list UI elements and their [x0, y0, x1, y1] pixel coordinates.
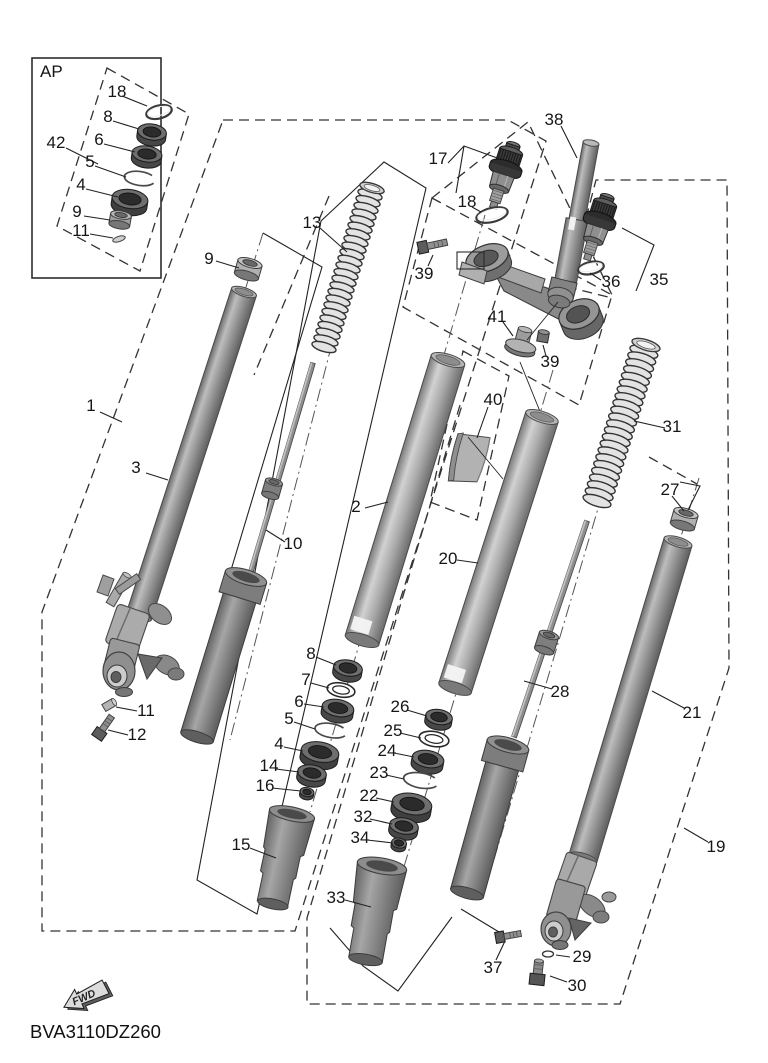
svg-text:42: 42 — [47, 133, 66, 152]
svg-text:10: 10 — [284, 534, 303, 553]
svg-text:16: 16 — [256, 776, 275, 795]
svg-text:35: 35 — [650, 270, 669, 289]
svg-text:18: 18 — [108, 82, 127, 101]
svg-text:17: 17 — [429, 149, 448, 168]
svg-text:33: 33 — [327, 888, 346, 907]
svg-text:22: 22 — [360, 786, 379, 805]
svg-text:21: 21 — [683, 703, 702, 722]
svg-text:4: 4 — [76, 175, 85, 194]
svg-text:3: 3 — [131, 458, 140, 477]
svg-text:39: 39 — [415, 264, 434, 283]
svg-text:5: 5 — [85, 152, 94, 171]
svg-text:5: 5 — [284, 709, 293, 728]
svg-text:40: 40 — [484, 390, 503, 409]
svg-text:27: 27 — [661, 480, 680, 499]
svg-text:19: 19 — [707, 837, 726, 856]
svg-text:12: 12 — [128, 725, 147, 744]
svg-text:38: 38 — [545, 110, 564, 129]
svg-text:BVA3110DZ260: BVA3110DZ260 — [30, 1021, 161, 1042]
svg-text:25: 25 — [384, 721, 403, 740]
svg-text:9: 9 — [204, 249, 213, 268]
svg-text:30: 30 — [568, 976, 587, 995]
svg-text:20: 20 — [439, 549, 458, 568]
svg-text:26: 26 — [391, 697, 410, 716]
svg-text:6: 6 — [294, 692, 303, 711]
svg-text:36: 36 — [602, 272, 621, 291]
svg-text:8: 8 — [103, 107, 112, 126]
svg-text:13: 13 — [303, 213, 322, 232]
svg-text:2: 2 — [351, 497, 360, 516]
svg-text:31: 31 — [663, 417, 682, 436]
svg-text:14: 14 — [260, 756, 279, 775]
svg-text:9: 9 — [72, 202, 81, 221]
svg-text:8: 8 — [306, 644, 315, 663]
svg-text:AP: AP — [40, 62, 63, 81]
svg-text:7: 7 — [301, 670, 310, 689]
svg-text:24: 24 — [378, 741, 397, 760]
svg-text:11: 11 — [137, 701, 155, 720]
svg-text:11: 11 — [72, 221, 90, 240]
svg-text:34: 34 — [351, 828, 370, 847]
svg-text:15: 15 — [232, 835, 251, 854]
svg-text:1: 1 — [86, 396, 95, 415]
svg-text:6: 6 — [94, 130, 103, 149]
svg-text:4: 4 — [274, 734, 283, 753]
svg-text:28: 28 — [551, 682, 570, 701]
svg-text:29: 29 — [573, 947, 592, 966]
svg-text:39: 39 — [541, 352, 560, 371]
svg-text:37: 37 — [484, 958, 503, 977]
svg-text:23: 23 — [370, 763, 389, 782]
svg-text:32: 32 — [354, 807, 373, 826]
